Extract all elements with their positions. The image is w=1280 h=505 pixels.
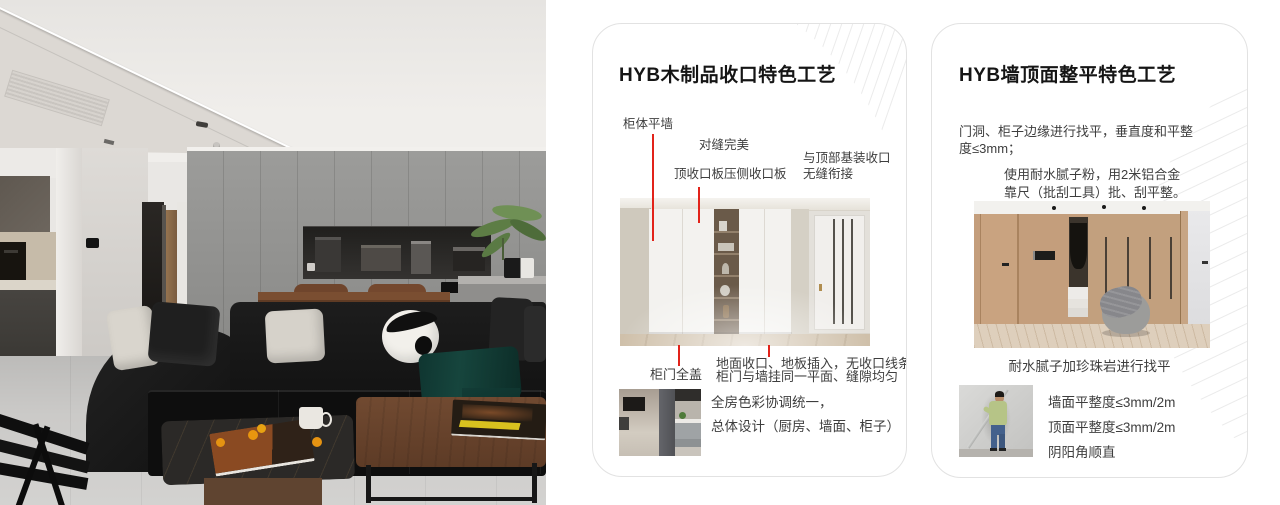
hall-left-door [980, 214, 1018, 326]
living-room-photo [0, 0, 546, 505]
orange-fruit [312, 437, 322, 447]
decor-lines-card1 [730, 23, 907, 216]
leader-line-cabinet-wall [652, 134, 654, 241]
worker-leg [991, 434, 997, 449]
builtin-coffee-machine [0, 242, 26, 284]
hall-control-panel [1033, 251, 1055, 260]
card2-bullet-1: 墙面平整度≤3mm/2m [1048, 390, 1175, 415]
hall-white-door [1188, 211, 1210, 333]
thermostat [86, 238, 99, 248]
callout-top-board: 顶收口板压侧收口板 [674, 168, 787, 181]
hall-wall-seam [1018, 214, 1019, 326]
thumb-column [659, 389, 675, 456]
hallway-photo-image [974, 201, 1210, 348]
hanging-clothes [1070, 223, 1087, 269]
shelf-item [718, 243, 734, 251]
render-glare [620, 284, 870, 346]
orange-fruit [248, 430, 258, 440]
card1-summary-line1: 全房色彩协调统一， [711, 394, 833, 412]
thumb-plant [679, 412, 686, 419]
leader-line-door-cover [678, 345, 680, 366]
shelf-board [714, 231, 739, 233]
callout-door-cover: 柜门全盖 [650, 368, 702, 381]
hall-white-door-handle [1202, 261, 1208, 264]
callout-top-joint-line1: 与顶部基装收口 [803, 152, 891, 165]
stone-coffee-table-base [204, 478, 322, 505]
card2-para2-line2: 靠尺（批刮工具）批、刮平整。 [1004, 184, 1186, 202]
card1-summary-line2: 总体设计（厨房、墙面、柜子） [711, 418, 900, 436]
sling-chair [0, 410, 84, 505]
shelf-item [722, 263, 729, 274]
wardrobe-handle-slot [1170, 237, 1172, 299]
worker-photo-image [959, 385, 1033, 457]
closet-drawers [1068, 287, 1090, 317]
thumb-floor [675, 447, 701, 456]
card2-title: HYB墙顶面整平特色工艺 [959, 60, 1176, 87]
magazine-2-photo [462, 404, 533, 422]
card2-para2-line1: 使用耐水腻子粉，用2米铝合金 [1004, 166, 1180, 184]
magazine-2-title [459, 420, 521, 430]
plant-pot [504, 258, 534, 278]
wall-niche [303, 226, 491, 279]
page: HYB木制品收口特色工艺 柜体平墙 对缝完美 顶收口板压侧收口板 与顶部基装收口… [0, 0, 1280, 505]
niche-cup-rack [361, 245, 401, 271]
card2-para1-line1: 门洞、柜子边缘进行找平，垂直度和平整 [959, 123, 1193, 140]
worker-shoe [999, 448, 1006, 451]
card2-para1-line2: 度≤3mm； [959, 140, 1021, 157]
wardrobe-handle-slot [1105, 237, 1107, 299]
interior-thumbnail-image [619, 389, 701, 456]
kitchen-upper-cabinets [0, 176, 50, 236]
hall-downlight [1142, 206, 1146, 210]
sofa-pillow-black [148, 301, 221, 367]
shelf-board [714, 253, 739, 255]
thumb-kitchen-top-cabinet [675, 389, 701, 401]
orange-fruit [216, 438, 225, 447]
hall-ceiling [974, 201, 1210, 214]
worker-hair [995, 391, 1004, 397]
card-woodwork-craft: HYB木制品收口特色工艺 柜体平墙 对缝完美 顶收口板压侧收口板 与顶部基装收口… [592, 23, 907, 477]
magazine-2 [451, 400, 546, 441]
card2-bullet-3: 阴阳角顺直 [1048, 440, 1116, 465]
wood-table-crossbar [366, 497, 536, 501]
plant-stem [502, 238, 504, 260]
orange-fruit [257, 424, 266, 433]
worker-shoe [990, 448, 997, 451]
shelf-item [719, 221, 727, 231]
niche-speaker [453, 247, 485, 271]
callout-top-joint-line2: 无缝衔接 [803, 168, 853, 181]
callout-cabinet-wall: 柜体平墙 [623, 118, 673, 131]
sofa-pillow-dark-2 [524, 306, 546, 362]
white-mug-handle [320, 412, 332, 427]
card-wall-leveling-craft: HYB墙顶面整平特色工艺 门洞、柜子边缘进行找平，垂直度和平整 度≤3mm； 使… [931, 23, 1248, 478]
niche-coffee-machine [315, 237, 341, 272]
leader-line-top-board [698, 187, 700, 223]
hall-floor [974, 324, 1210, 348]
thumb-kitchen-cabinet [675, 423, 701, 447]
hall-downlight [1052, 206, 1056, 210]
niche-cup [307, 263, 315, 271]
worker-leg [999, 434, 1005, 449]
card2-bullet-2: 顶面平整度≤3mm/2m [1048, 415, 1175, 440]
card2-caption: 耐水腻子加珍珠岩进行找平 [932, 358, 1247, 376]
cabinet-render-image [620, 198, 870, 346]
hall-door-handle [1002, 263, 1009, 266]
sofa-pillow-white-2 [265, 309, 326, 364]
white-column [56, 148, 83, 364]
shelf-board [714, 275, 739, 277]
hall-downlight [1102, 205, 1106, 209]
callout-seam: 对缝完美 [699, 139, 749, 152]
thumb-sofa [619, 417, 629, 430]
callout-floor-line2: 柜门与墙挂同一平面、缝隙均匀 [716, 370, 898, 383]
coffee-machine-screen [4, 250, 18, 253]
wardrobe-handle-slot [1149, 237, 1151, 299]
niche-espresso-machine [411, 241, 431, 274]
card1-title: HYB木制品收口特色工艺 [619, 60, 836, 87]
thumb-tv [623, 397, 645, 411]
